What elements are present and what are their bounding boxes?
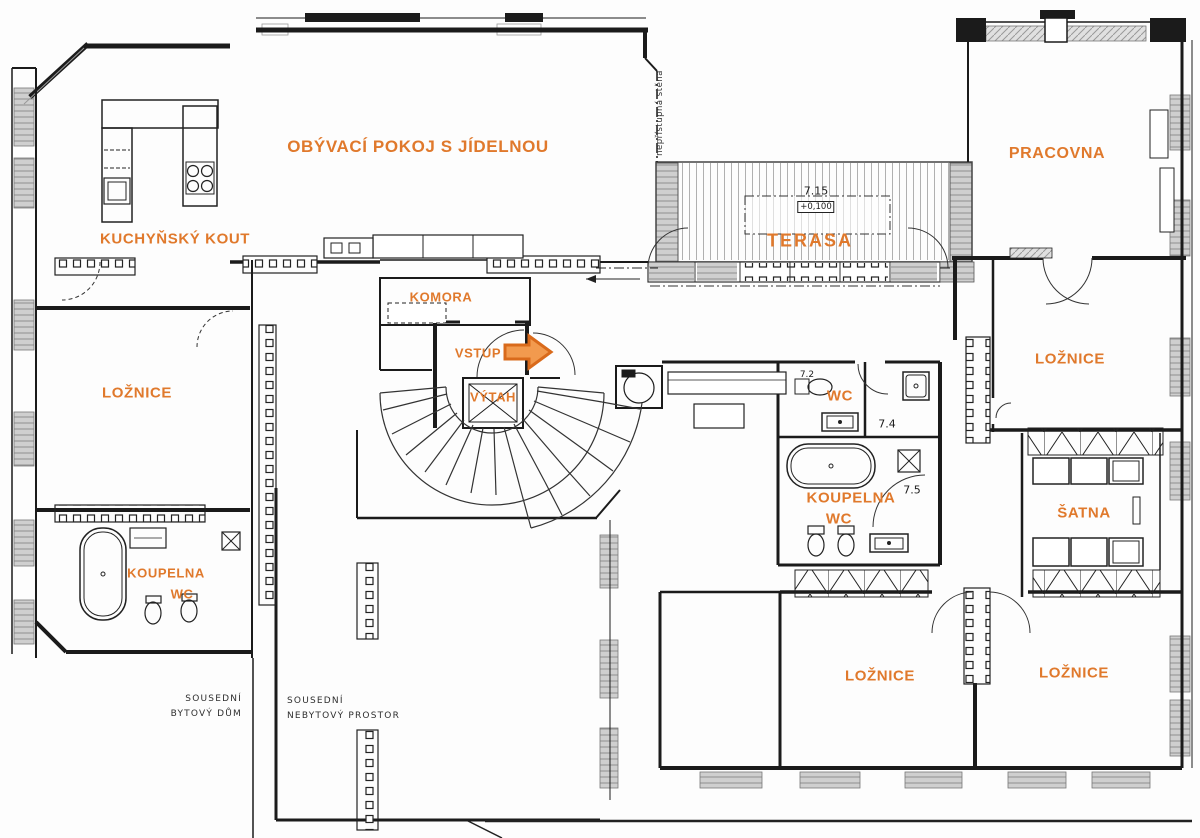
doors — [62, 228, 1092, 633]
room-label-pantry: KOMORA — [410, 290, 473, 305]
pillar — [1045, 18, 1067, 42]
room-label-kitchenette: KUCHYŇSKÝ KOUT — [100, 231, 250, 248]
bathtub-icon — [787, 444, 875, 488]
neighbor-residential-note: SOUSEDNÍ BYTOVÝ DŮM — [150, 692, 242, 722]
room-label-entrance: VSTUP — [455, 346, 501, 361]
bathroom-room-number: 7.5 — [903, 484, 921, 497]
toilet-icon — [808, 526, 824, 556]
floor-plan: OBÝVACÍ POKOJ S JÍDELNOU KUCHYŇSKÝ KOUT … — [0, 0, 1200, 838]
room-label-bedroom-bottom-left: LOŽNICE — [845, 668, 915, 685]
bathtub-icon — [80, 528, 126, 620]
room-label-elevator: VÝTAH — [470, 390, 516, 405]
windows — [14, 24, 1190, 788]
entry-arrow-icon — [505, 336, 551, 368]
room-label-living-room: OBÝVACÍ POKOJ S JÍDELNOU — [287, 137, 549, 157]
room-label-wc: WC — [827, 388, 853, 405]
room-label-walk-in-closet: ŠATNA — [1057, 505, 1111, 522]
terrace-area-number: 7.15 — [804, 185, 829, 198]
wc-fixtures — [795, 372, 929, 431]
neighbor-nonresidential-note: SOUSEDNÍ NEBYTOVÝ PROSTOR — [287, 694, 400, 724]
boiler-icon — [616, 366, 662, 408]
room-label-study: PRACOVNA — [1009, 145, 1105, 163]
shower-room-number: 7.4 — [878, 418, 896, 431]
wc-room-number: 7.2 — [800, 370, 814, 380]
inaccessible-wall-note: nepřístupná stěna — [655, 70, 665, 156]
terrace-elevation-number: +0,100 — [797, 201, 834, 213]
stove-icon — [186, 162, 214, 194]
room-label-bathroom-right-1: KOUPELNA — [807, 490, 896, 507]
toilet-icon — [145, 596, 161, 624]
terrace-deck — [648, 162, 974, 286]
kitchen-fixtures — [102, 100, 218, 222]
room-label-bedroom-bottom-right: LOŽNICE — [1039, 665, 1109, 682]
room-label-bathroom-left-1: KOUPELNA — [127, 566, 205, 581]
bidet-icon — [838, 526, 854, 556]
staircase — [380, 387, 642, 528]
room-label-bathroom-right-2: WC — [826, 511, 852, 528]
room-label-bathroom-left-2: WC — [171, 587, 194, 602]
room-label-bedroom-left: LOŽNICE — [102, 385, 172, 402]
room-label-terrace: TERASA — [767, 231, 853, 252]
room-label-bedroom-right: LOŽNICE — [1035, 351, 1105, 368]
shaft-squares — [55, 256, 990, 830]
